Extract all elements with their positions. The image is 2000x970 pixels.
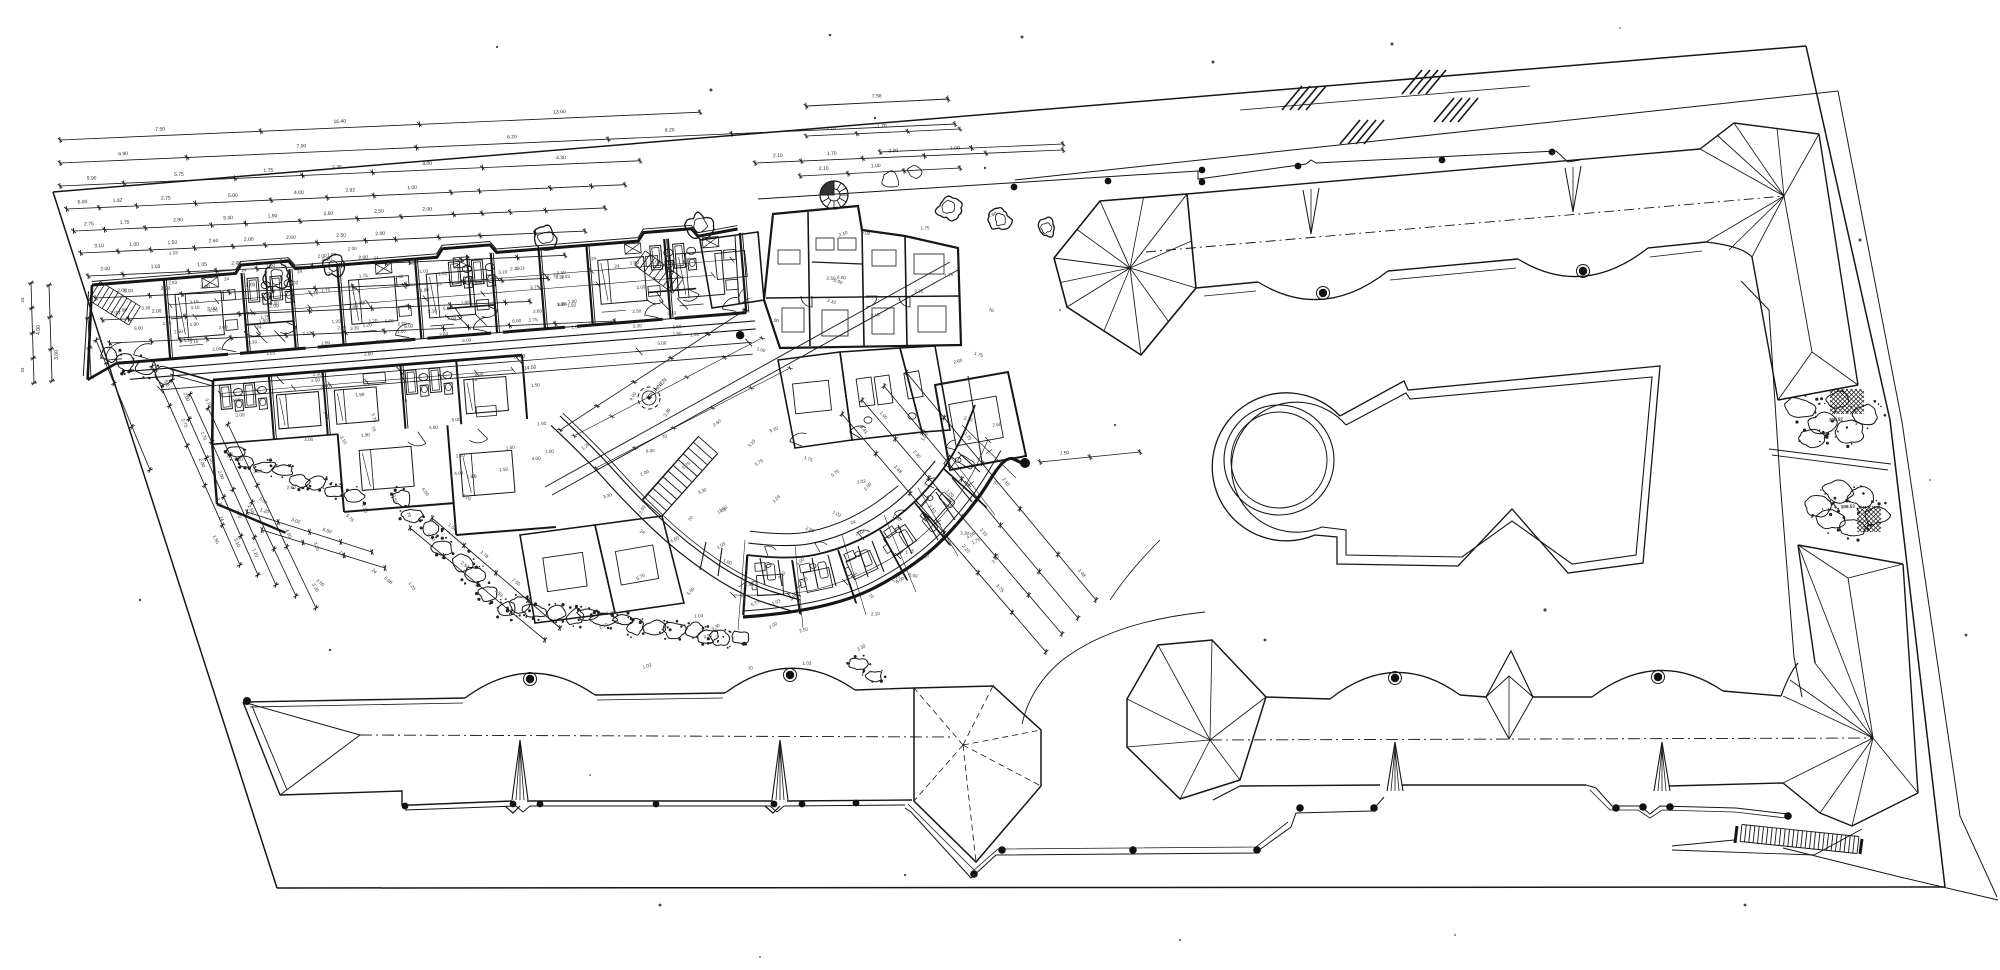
svg-text:2.60: 2.60 (533, 308, 543, 314)
svg-text:6.00: 6.00 (651, 259, 661, 265)
svg-text:1.00: 1.00 (397, 328, 407, 334)
svg-text:24: 24 (437, 281, 443, 286)
svg-text:2.60: 2.60 (321, 383, 331, 389)
svg-text:16.40: 16.40 (333, 119, 346, 126)
svg-text:308.52: 308.52 (1829, 416, 1844, 422)
svg-text:70: 70 (748, 666, 754, 672)
svg-text:2.10: 2.10 (826, 126, 836, 132)
svg-text:2.60: 2.60 (439, 331, 449, 337)
svg-text:2.50: 2.50 (174, 329, 184, 335)
svg-text:6.20: 6.20 (507, 134, 517, 140)
svg-text:308.53: 308.53 (1841, 503, 1856, 509)
svg-text:1.50: 1.50 (499, 467, 509, 473)
svg-text:2.00: 2.00 (100, 266, 110, 272)
svg-text:1.00: 1.00 (568, 299, 578, 305)
svg-text:1.20: 1.20 (234, 456, 244, 462)
svg-text:2.00: 2.00 (408, 260, 418, 266)
svg-text:1.03: 1.03 (515, 265, 525, 271)
svg-text:8.20: 8.20 (665, 127, 675, 133)
svg-text:1.50: 1.50 (167, 240, 177, 246)
svg-text:1.50: 1.50 (475, 280, 485, 286)
svg-text:1.20: 1.20 (456, 453, 466, 459)
svg-text:1.20: 1.20 (331, 319, 341, 325)
svg-text:3.30: 3.30 (350, 325, 360, 331)
svg-text:3.10: 3.10 (302, 331, 312, 337)
svg-text:1.75: 1.75 (528, 317, 538, 323)
svg-text:5.75: 5.75 (530, 284, 540, 290)
svg-text:2.60: 2.60 (286, 235, 296, 241)
svg-text:5.00: 5.00 (429, 425, 439, 431)
svg-text:1.03: 1.03 (162, 320, 172, 326)
svg-text:4.00: 4.00 (294, 190, 304, 196)
svg-text:4.30: 4.30 (556, 155, 566, 161)
svg-text:2.50: 2.50 (311, 377, 321, 383)
svg-text:2.10: 2.10 (428, 308, 438, 314)
svg-text:1.00: 1.00 (438, 271, 448, 277)
svg-text:2.60: 2.60 (263, 295, 273, 301)
svg-text:3.30: 3.30 (914, 288, 924, 294)
svg-text:5.00: 5.00 (657, 340, 667, 346)
svg-text:3.10: 3.10 (189, 299, 199, 305)
svg-text:2.00: 2.00 (375, 231, 385, 237)
svg-text:4.00: 4.00 (454, 470, 464, 476)
svg-text:1.03: 1.03 (802, 661, 812, 666)
svg-text:1.00: 1.00 (407, 185, 417, 191)
svg-text:3.10: 3.10 (498, 269, 508, 275)
svg-text:24: 24 (256, 324, 262, 329)
svg-text:5.75: 5.75 (174, 172, 184, 178)
svg-text:1.90: 1.90 (466, 474, 476, 480)
svg-text:1.00: 1.00 (871, 163, 881, 169)
svg-text:2.00: 2.00 (212, 346, 222, 352)
svg-text:2.60: 2.60 (218, 324, 228, 330)
svg-text:24: 24 (591, 256, 597, 261)
svg-text:2.60: 2.60 (200, 284, 210, 290)
svg-text:2.00: 2.00 (349, 304, 359, 310)
svg-text:4.00: 4.00 (36, 325, 42, 335)
svg-text:1.00: 1.00 (266, 263, 276, 269)
svg-text:2.50: 2.50 (231, 397, 241, 403)
svg-text:1.90: 1.90 (420, 287, 430, 293)
svg-text:1.70: 1.70 (877, 123, 887, 129)
svg-text:1.50: 1.50 (690, 332, 700, 338)
svg-text:1.75: 1.75 (263, 168, 273, 174)
svg-text:6.00: 6.00 (462, 337, 472, 343)
svg-text:1.00: 1.00 (461, 300, 471, 306)
svg-text:1.70: 1.70 (827, 151, 837, 157)
svg-text:1.00: 1.00 (571, 324, 581, 330)
svg-text:24: 24 (20, 297, 25, 303)
svg-text:24: 24 (297, 269, 303, 274)
svg-text:3.30: 3.30 (633, 323, 643, 329)
svg-text:2.60: 2.60 (992, 422, 1002, 428)
svg-text:70: 70 (502, 330, 508, 335)
svg-text:1.50: 1.50 (531, 382, 541, 388)
svg-text:1.03: 1.03 (169, 250, 179, 256)
svg-text:1.90: 1.90 (672, 331, 682, 337)
svg-text:24: 24 (614, 263, 620, 268)
svg-text:1.50: 1.50 (506, 445, 516, 451)
svg-text:5.75: 5.75 (309, 290, 319, 296)
svg-text:1.20: 1.20 (363, 322, 373, 328)
svg-text:24: 24 (224, 276, 230, 281)
svg-text:3.10: 3.10 (606, 610, 616, 616)
svg-text:3.10: 3.10 (190, 305, 200, 311)
svg-text:24: 24 (373, 255, 379, 260)
svg-text:2.00: 2.00 (422, 206, 432, 212)
svg-text:14.50: 14.50 (524, 365, 537, 372)
svg-text:2.50: 2.50 (336, 232, 346, 238)
svg-text:2.60: 2.60 (323, 211, 333, 217)
svg-text:1.50: 1.50 (537, 421, 547, 427)
svg-text:1.05: 1.05 (197, 262, 207, 268)
svg-text:7.50: 7.50 (1059, 450, 1069, 457)
svg-text:2.50: 2.50 (374, 208, 384, 214)
svg-text:2.10: 2.10 (819, 166, 829, 172)
svg-text:3.00: 3.00 (54, 350, 60, 360)
svg-text:5.00: 5.00 (376, 339, 386, 345)
svg-text:6.90: 6.90 (118, 151, 128, 157)
svg-text:24: 24 (20, 367, 25, 373)
svg-text:1.90: 1.90 (321, 340, 331, 346)
svg-text:1.03: 1.03 (151, 264, 161, 270)
svg-text:2.50: 2.50 (632, 308, 642, 314)
svg-text:2.80: 2.80 (173, 217, 183, 223)
svg-text:2.00: 2.00 (313, 371, 323, 377)
svg-text:1.00: 1.00 (770, 317, 780, 323)
svg-text:6.00: 6.00 (270, 300, 280, 306)
svg-text:1.00: 1.00 (129, 241, 139, 247)
svg-text:1.75: 1.75 (359, 273, 369, 279)
svg-text:2.10: 2.10 (402, 338, 412, 344)
svg-text:5.00: 5.00 (451, 417, 461, 423)
svg-text:1.90: 1.90 (361, 432, 371, 438)
svg-text:1.03: 1.03 (694, 613, 704, 619)
svg-text:24: 24 (328, 271, 334, 276)
svg-text:2.00: 2.00 (244, 236, 254, 242)
svg-text:4.00: 4.00 (532, 456, 542, 462)
svg-text:2.00: 2.00 (337, 325, 347, 331)
svg-text:6.00: 6.00 (247, 311, 257, 317)
svg-text:5.00: 5.00 (134, 325, 144, 331)
svg-text:1.00: 1.00 (545, 449, 555, 455)
svg-text:2.00: 2.00 (636, 284, 646, 290)
svg-text:5.90: 5.90 (87, 175, 97, 181)
svg-text:1.00: 1.00 (327, 252, 337, 258)
svg-text:1.20: 1.20 (183, 337, 193, 343)
svg-text:2.10: 2.10 (667, 310, 677, 316)
svg-text:1.50: 1.50 (396, 258, 406, 264)
svg-text:3.10: 3.10 (94, 243, 104, 249)
svg-text:24: 24 (360, 299, 366, 304)
svg-text:13.00: 13.00 (553, 109, 566, 116)
svg-text:1.50: 1.50 (557, 270, 567, 276)
svg-text:2.60: 2.60 (447, 315, 457, 321)
svg-text:1.90: 1.90 (355, 392, 365, 398)
svg-text:1.90: 1.90 (268, 213, 278, 219)
svg-text:2.60: 2.60 (364, 351, 374, 357)
svg-text:6.00: 6.00 (646, 448, 656, 454)
svg-text:2.75: 2.75 (161, 195, 171, 201)
svg-text:2.00: 2.00 (152, 308, 162, 314)
svg-text:5.00: 5.00 (228, 193, 238, 199)
svg-text:4.00: 4.00 (422, 161, 432, 167)
svg-text:2.00: 2.00 (348, 246, 358, 252)
svg-text:2.60: 2.60 (168, 280, 178, 286)
svg-text:2.10: 2.10 (871, 611, 881, 617)
svg-text:2.00: 2.00 (317, 253, 327, 259)
svg-text:24: 24 (241, 268, 247, 273)
svg-text:1.75: 1.75 (120, 220, 130, 226)
svg-text:1.50: 1.50 (672, 324, 682, 330)
svg-text:5.00: 5.00 (223, 215, 233, 221)
svg-text:1.75: 1.75 (321, 288, 331, 294)
svg-text:2.60: 2.60 (208, 238, 218, 244)
svg-text:5.00: 5.00 (443, 305, 453, 311)
svg-text:6.00: 6.00 (124, 288, 134, 294)
svg-text:7.00: 7.00 (296, 143, 306, 149)
svg-text:1.90: 1.90 (118, 307, 128, 313)
svg-text:3.30: 3.30 (141, 305, 151, 311)
svg-text:1.50: 1.50 (259, 318, 269, 324)
svg-text:5.75: 5.75 (332, 165, 342, 171)
svg-text:70: 70 (402, 398, 408, 403)
svg-text:7.58: 7.58 (872, 93, 882, 99)
svg-text:6.00: 6.00 (512, 318, 522, 324)
svg-text:2.75: 2.75 (84, 221, 94, 227)
svg-text:5.00: 5.00 (385, 318, 395, 324)
svg-text:1.20: 1.20 (208, 307, 218, 313)
svg-text:1.03: 1.03 (857, 479, 867, 485)
svg-text:2.00: 2.00 (235, 412, 245, 418)
svg-text:2.60: 2.60 (253, 469, 263, 475)
svg-text:2.92: 2.92 (345, 187, 355, 193)
svg-text:1.03: 1.03 (419, 268, 429, 274)
svg-text:1.75: 1.75 (920, 225, 930, 230)
svg-text:3.30: 3.30 (394, 274, 404, 280)
svg-text:2.60: 2.60 (287, 485, 297, 491)
svg-text:5.00: 5.00 (77, 199, 87, 205)
svg-text:3.30: 3.30 (248, 339, 258, 345)
svg-text:7.50: 7.50 (155, 126, 165, 132)
svg-text:1.92: 1.92 (113, 198, 123, 204)
svg-text:1.90: 1.90 (190, 321, 200, 327)
svg-text:2.10: 2.10 (773, 153, 783, 159)
svg-text:1.90: 1.90 (745, 582, 755, 588)
svg-text:4.00: 4.00 (304, 437, 314, 443)
svg-text:1.90: 1.90 (630, 260, 640, 266)
svg-text:1.03: 1.03 (266, 350, 276, 356)
svg-text:6.00: 6.00 (558, 301, 568, 307)
svg-text:3.30: 3.30 (474, 371, 484, 377)
svg-text:24: 24 (472, 377, 478, 382)
